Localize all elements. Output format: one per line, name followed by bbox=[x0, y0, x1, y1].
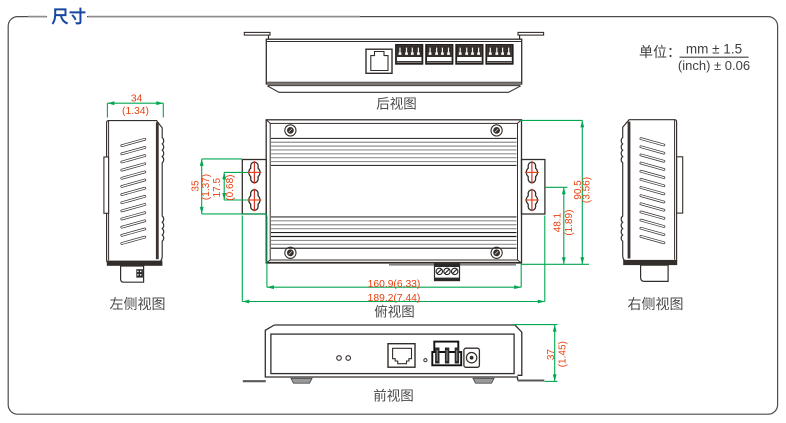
svg-text:(0.68): (0.68) bbox=[225, 175, 236, 201]
svg-text:俯视图: 俯视图 bbox=[374, 305, 415, 320]
svg-text:尺寸: 尺寸 bbox=[52, 6, 87, 26]
svg-text:17.5: 17.5 bbox=[212, 178, 223, 198]
svg-text:(1.89): (1.89) bbox=[564, 210, 575, 236]
svg-text:160.9(6.33): 160.9(6.33) bbox=[368, 279, 421, 290]
svg-text:48.1: 48.1 bbox=[553, 212, 564, 232]
svg-text:前视图: 前视图 bbox=[373, 388, 414, 404]
svg-text:37: 37 bbox=[546, 349, 557, 361]
svg-text:后视图: 后视图 bbox=[376, 97, 417, 112]
svg-text:mm ± 1.5: mm ± 1.5 bbox=[686, 42, 742, 57]
svg-text:34: 34 bbox=[131, 94, 143, 105]
svg-text:35: 35 bbox=[190, 180, 201, 192]
svg-text:189.2(7.44): 189.2(7.44) bbox=[368, 293, 421, 304]
svg-text:单位：: 单位： bbox=[639, 44, 681, 60]
svg-text:(1.37): (1.37) bbox=[201, 174, 212, 200]
svg-text:(inch) ± 0.06: (inch) ± 0.06 bbox=[678, 58, 750, 73]
svg-text:(1.45): (1.45) bbox=[558, 341, 569, 367]
svg-text:(3.56): (3.56) bbox=[582, 177, 593, 203]
svg-text:(1.34): (1.34) bbox=[122, 106, 149, 117]
svg-text:左侧视图: 左侧视图 bbox=[110, 296, 166, 312]
svg-text:右侧视图: 右侧视图 bbox=[628, 296, 684, 312]
